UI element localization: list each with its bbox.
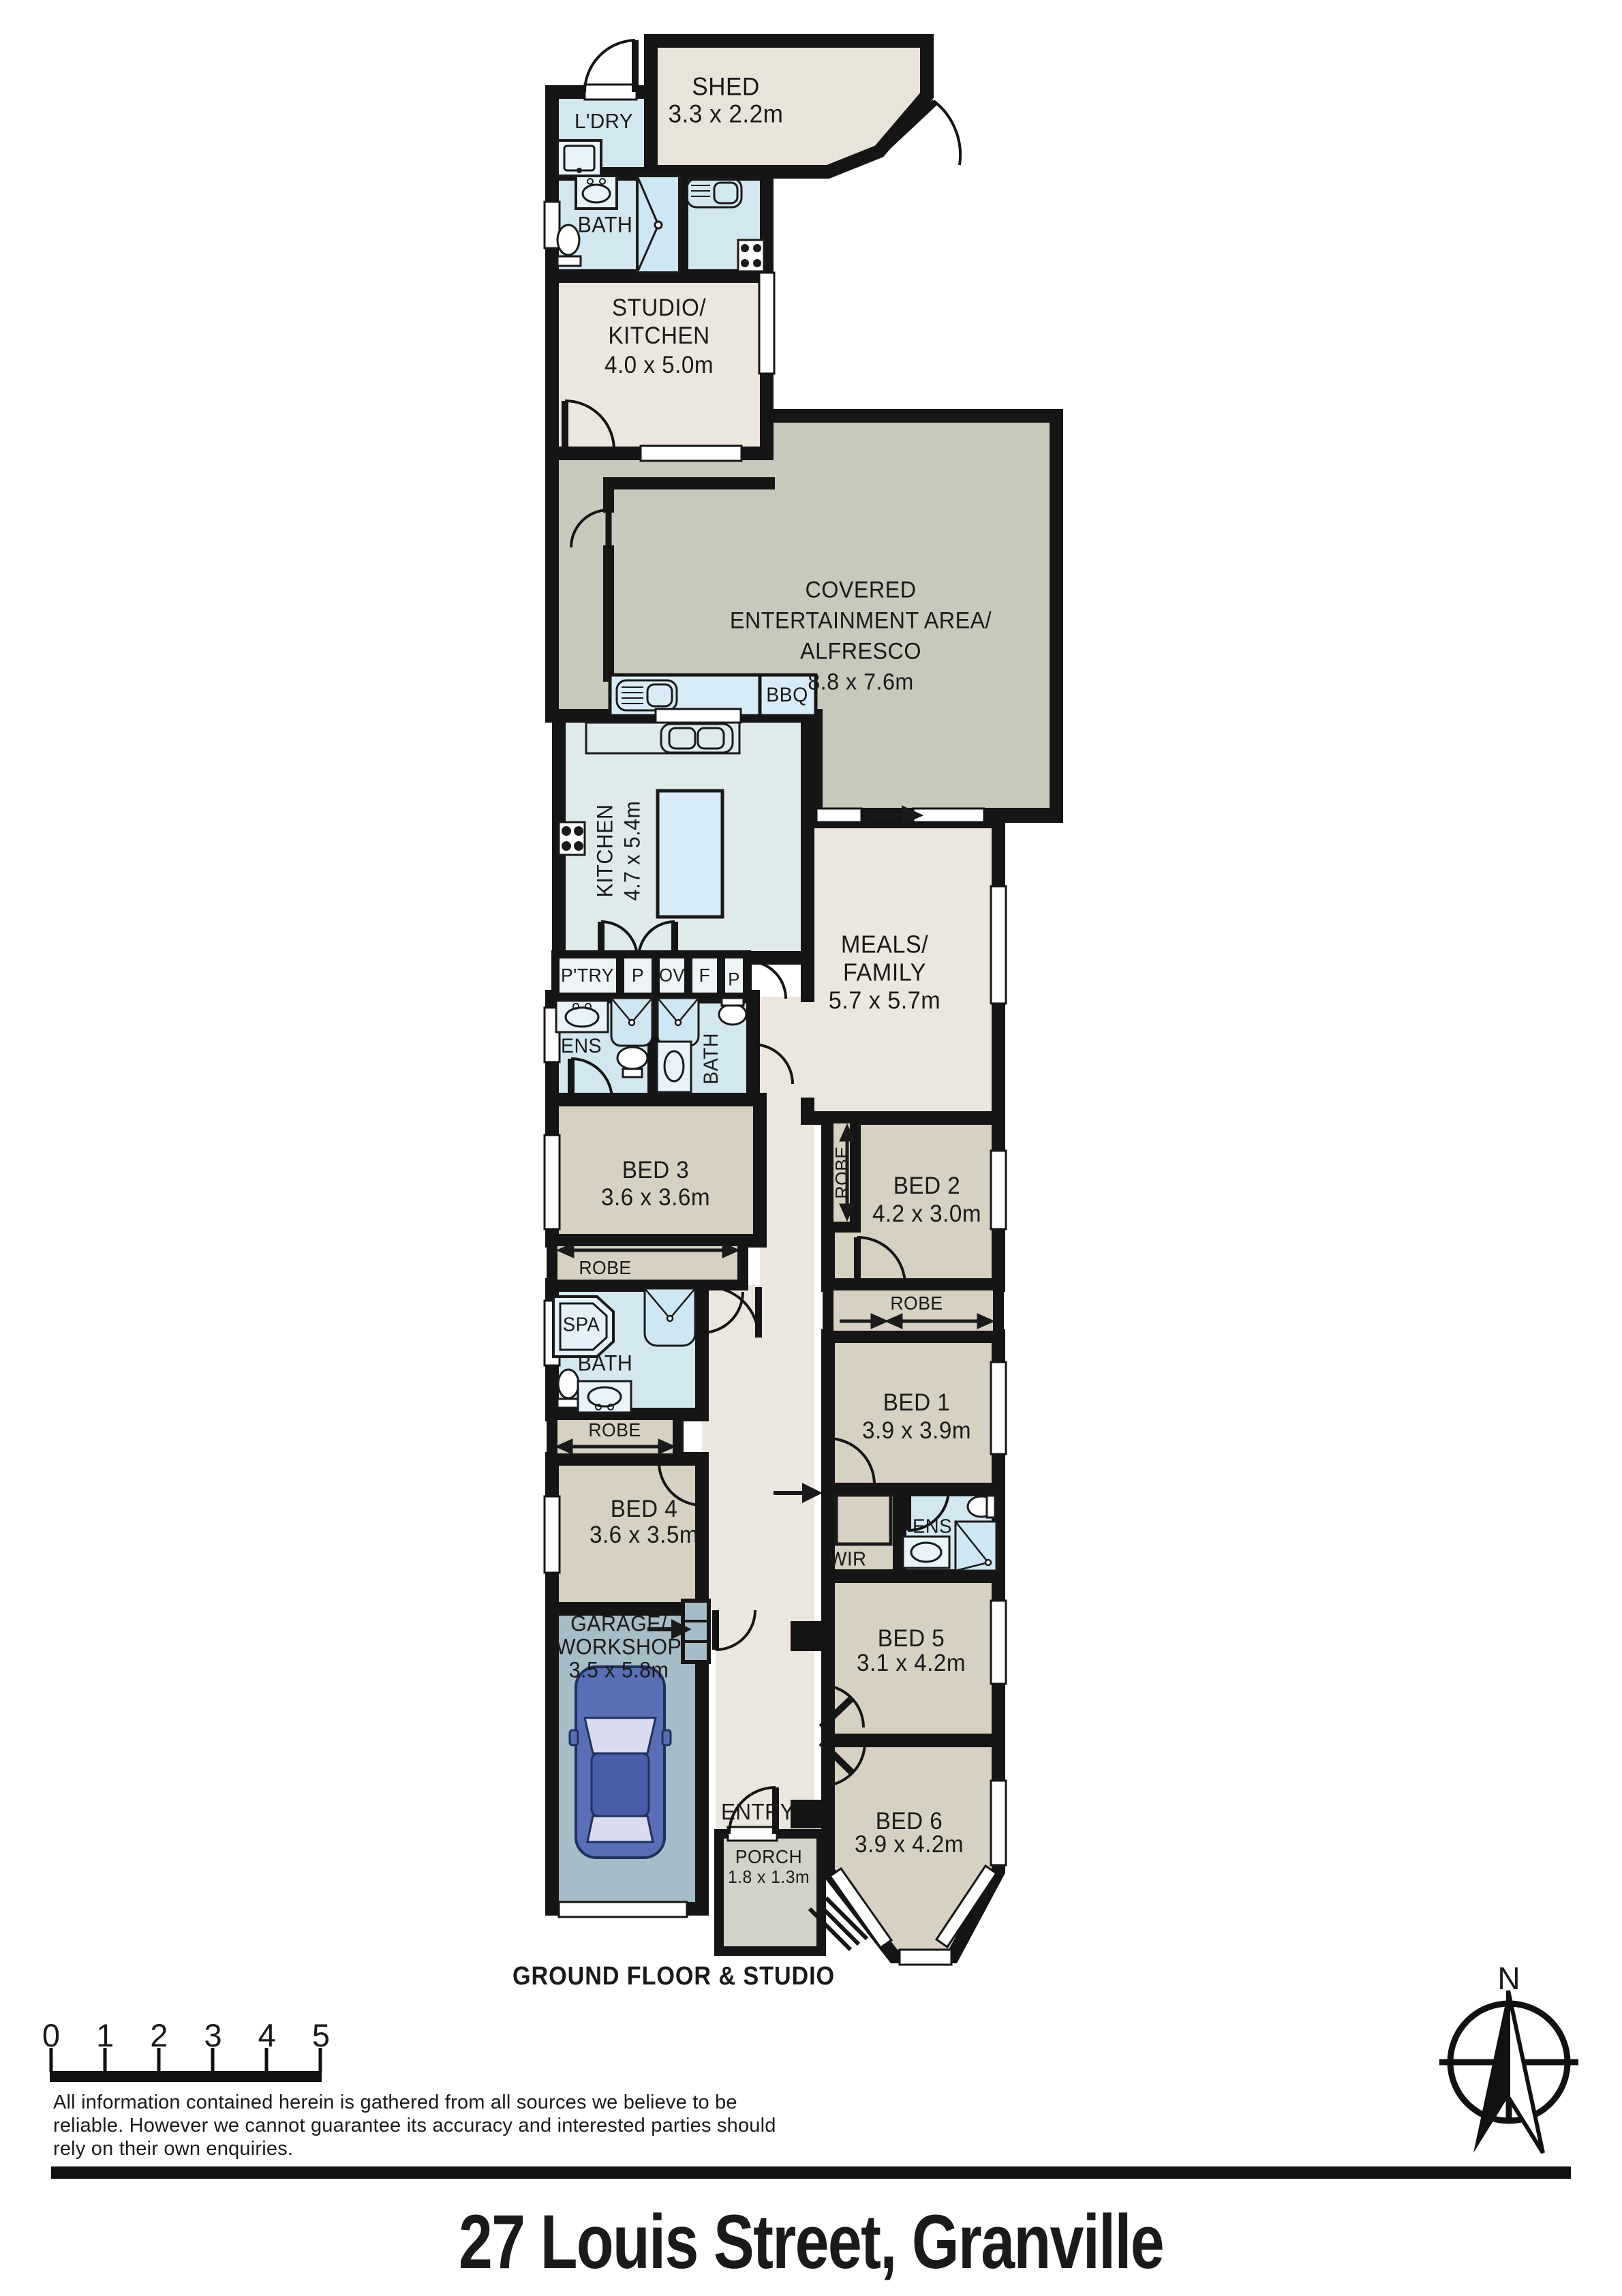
- studio-label-2: KITCHEN: [608, 322, 709, 350]
- studio-shower-icon: [637, 176, 679, 273]
- studio-bath-label: BATH: [578, 213, 633, 238]
- shed-dims: 3.3 x 2.2m: [669, 100, 784, 130]
- bed1-dims: 3.9 x 3.9m: [862, 1417, 971, 1445]
- compass-icon: [1439, 1991, 1578, 2153]
- scale-mark-5: 5: [305, 2016, 337, 2054]
- bed5-label: BED 5: [878, 1625, 945, 1652]
- meals-label-1: MEALS/: [841, 930, 928, 958]
- laundry-label: L'DRY: [575, 109, 633, 134]
- bed2-label: BED 2: [893, 1173, 960, 1200]
- meals-label-2: FAMILY: [843, 958, 926, 986]
- bed4-label: BED 4: [611, 1496, 677, 1523]
- garage-dims: 3.5 x 5.8m: [569, 1658, 669, 1683]
- p1-label: P: [632, 965, 644, 986]
- bed2-dims: 4.2 x 3.0m: [872, 1200, 981, 1228]
- pantry-label: P'TRY: [561, 965, 614, 986]
- porch-dims: 1.8 x 1.3m: [728, 1867, 810, 1888]
- garage-label-1: GARAGE/: [570, 1612, 667, 1637]
- bath1-label: BATH: [700, 1033, 724, 1085]
- wir-label: WIR: [829, 1548, 867, 1571]
- alfresco-label-1: COVERED: [805, 577, 916, 603]
- studio-dims: 4.0 x 5.0m: [605, 352, 714, 379]
- scale-mark-3: 3: [198, 2016, 229, 2054]
- bbq-label: BBQ: [766, 684, 808, 708]
- fridge-label: F: [699, 965, 711, 986]
- scale-bar-marks: 0 1 2 3 4 5: [35, 2016, 337, 2054]
- laundry-sink-icon: [557, 140, 601, 176]
- car-icon: [570, 1667, 671, 1858]
- entry-label: ENTRY: [721, 1799, 795, 1825]
- north-arrow-icon: [1473, 1991, 1543, 2153]
- disclaimer-line-1: All information contained herein is gath…: [53, 2091, 737, 2114]
- bed3-label: BED 3: [622, 1157, 689, 1184]
- kitchen-dims: 4.7 x 5.4m: [620, 801, 645, 901]
- compass-north-label: N: [1497, 1960, 1520, 1997]
- alfresco-dims: 8.8 x 7.6m: [808, 669, 914, 695]
- bed4-dims: 3.6 x 3.5m: [590, 1522, 699, 1549]
- garage-label-2: WORKSHOP: [556, 1635, 682, 1660]
- scale-mark-1: 1: [89, 2016, 121, 2054]
- meals-dims: 5.7 x 5.7m: [829, 986, 940, 1014]
- porch-label: PORCH: [735, 1846, 802, 1868]
- alfresco-label-2: ENTERTAINMENT AREA/: [730, 607, 992, 634]
- bed3-robe-label: ROBE: [579, 1257, 631, 1279]
- ens2-label: ENS: [913, 1515, 952, 1538]
- kitchen-island: [658, 791, 722, 917]
- kitchenette-stove-icon: [738, 240, 764, 271]
- kitchen-stove-icon: [559, 822, 585, 855]
- page-title: 27 Louis Street, Granville: [162, 2198, 1460, 2286]
- kitchen-label: KITCHEN: [593, 804, 618, 898]
- shed-label: SHED: [692, 73, 760, 102]
- bed5-dims: 3.1 x 4.2m: [857, 1650, 966, 1677]
- bed2-robe-label: ROBE: [831, 1146, 853, 1198]
- floor-plan-drawing: [0, 0, 1622, 2296]
- oven-label: OV: [659, 965, 685, 986]
- disclaimer-line-2: reliable. However we cannot guarantee it…: [53, 2115, 776, 2137]
- studio-bath-sink-icon: [576, 176, 617, 209]
- bed6-dims: 3.9 x 4.2m: [855, 1831, 964, 1858]
- bath2-label: BATH: [578, 1351, 633, 1376]
- bed1-robe-label: ROBE: [890, 1293, 943, 1314]
- plan-caption: GROUND FLOOR & STUDIO: [512, 1962, 835, 1991]
- spa-label: SPA: [563, 1314, 600, 1336]
- studio-label-1: STUDIO/: [612, 294, 706, 322]
- scale-mark-0: 0: [35, 2016, 67, 2054]
- disclaimer-line-3: rely on their own enquiries.: [53, 2138, 293, 2160]
- alfresco-label-3: ALFRESCO: [800, 638, 921, 665]
- bed3-dims: 3.6 x 3.6m: [601, 1184, 710, 1211]
- scale-mark-2: 2: [143, 2016, 174, 2054]
- bed1-label: BED 1: [883, 1389, 950, 1417]
- ens1-label: ENS: [561, 1035, 602, 1059]
- bed4-robe-label: ROBE: [588, 1419, 641, 1441]
- p2-label: P: [728, 969, 740, 990]
- divider-rule: [51, 2166, 1571, 2179]
- scale-mark-4: 4: [251, 2016, 283, 2054]
- floor-plan-page: SHED 3.3 x 2.2m L'DRY BATH STUDIO/ KITCH…: [0, 0, 1622, 2296]
